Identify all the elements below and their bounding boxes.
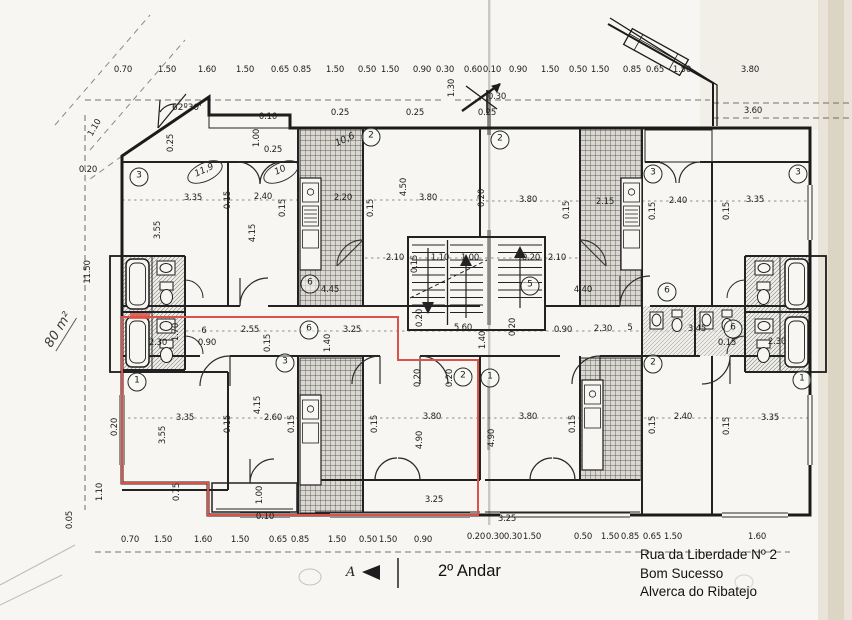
dimension-label: 6 — [201, 327, 206, 336]
room-number-circle: 1 — [481, 369, 500, 388]
dimension-label: 3.25 — [498, 515, 516, 524]
address-line-1: Rua da Liberdade Nº 2 — [640, 546, 777, 565]
dimension-label: 3.80 — [519, 196, 537, 205]
address-line-3: Alverca do Ribatejo — [640, 583, 777, 602]
dimension-label: 1.60 — [198, 66, 216, 75]
dimension-label: 1.40 — [479, 331, 488, 349]
scanned-floor-plan: 2º Andar Rua da Liberdade Nº 2 Bom Suces… — [0, 0, 852, 620]
dimension-label: 3.35 — [184, 194, 202, 203]
address-line-2: Bom Sucesso — [640, 565, 777, 584]
dimension-label: 1.10 — [431, 254, 449, 263]
dimension-label: 0.15 — [723, 202, 732, 220]
dimension-label: 0.15 — [279, 199, 288, 217]
room-number-circle: 6 — [300, 321, 319, 340]
dimension-label: 0.20 — [416, 309, 425, 327]
dimension-label: 1.50 — [541, 66, 559, 75]
dimension-label: 5 60 — [454, 324, 472, 333]
dimension-label: 1.50 — [523, 533, 541, 542]
dimension-label: 0.20 — [414, 369, 423, 387]
dimension-label: 1.50 — [326, 66, 344, 75]
dimension-label: 1.70 — [172, 323, 181, 341]
dimension-label: 3.35 — [176, 414, 194, 423]
dimension-label: 1.50 — [591, 66, 609, 75]
dimension-label: 0.30 — [486, 533, 504, 542]
dimension-label: 0.85 — [623, 66, 641, 75]
room-number-circle: 2 — [644, 355, 663, 374]
angle-annotation: 62º30' — [172, 103, 202, 113]
room-number-circle: 3 — [644, 165, 663, 184]
dimension-label: 0.25 — [406, 109, 424, 118]
room-number-circle: 5 — [521, 277, 540, 296]
dimension-label: 4.90 — [488, 429, 497, 447]
dimension-label: 3.80 — [741, 66, 759, 75]
section-cut-marker — [362, 558, 398, 588]
dimension-label: 0.75 — [173, 483, 182, 501]
dimension-label: 2.60 — [264, 414, 282, 423]
dimension-label: 0.15 — [563, 201, 572, 219]
dimension-label: 0.20 — [509, 318, 518, 336]
dimension-label: 2.40 — [674, 413, 692, 422]
dimension-label: 2.30 — [768, 338, 786, 347]
dimension-label: 0.10 — [259, 113, 277, 122]
dimension-label: 2.10 — [548, 254, 566, 263]
room-number-circle: 3 — [276, 354, 295, 373]
dimension-label: 0.15 — [718, 339, 736, 348]
dimension-label: 4.50 — [400, 178, 409, 196]
room-number-circle: 2 — [454, 368, 473, 387]
room-number-circle: 1 — [793, 371, 812, 390]
dimension-label: 0.20 — [522, 254, 540, 263]
dimension-label: 0.70 — [121, 536, 139, 545]
dimension-label: 0.50 — [358, 66, 376, 75]
dimension-label: 1.50 — [328, 536, 346, 545]
address-block: Rua da Liberdade Nº 2 Bom Sucesso Alverc… — [640, 546, 777, 602]
dimension-label: 2.15 — [596, 198, 614, 207]
dimension-label: 3.55 — [159, 426, 168, 444]
dimension-label: 1.50 — [379, 536, 397, 545]
dimension-label: 0.30 — [436, 66, 454, 75]
dimension-label: 1.60 — [748, 533, 766, 542]
dimension-label: 0.15 — [649, 416, 658, 434]
room-number-circle: 2 — [491, 131, 510, 150]
dimension-label: 0.50 — [574, 533, 592, 542]
dimension-label: 2.40 — [669, 197, 687, 206]
dimension-label: 0.15 — [367, 199, 376, 217]
dimension-label: 3.60 — [744, 107, 762, 116]
dimension-label: 0.65 — [646, 66, 664, 75]
dimension-label: 0.25 — [331, 109, 349, 118]
room-number-circle: 6 — [301, 275, 320, 294]
dimension-label: 0.15 — [288, 415, 297, 433]
dimension-label: 2.20 — [334, 194, 352, 203]
floor-plan-drawing — [0, 0, 852, 620]
dimension-label: 0.65 — [271, 66, 289, 75]
dimension-label: 0.85 — [621, 533, 639, 542]
room-number-circle: 3 — [789, 165, 808, 184]
room-number-circle: 3 — [130, 168, 149, 187]
dimension-label: 1.50 — [673, 66, 691, 75]
dimension-label: 0.85 — [291, 536, 309, 545]
dimension-label: 3.35 — [746, 196, 764, 205]
dimension-label: 3.80 — [419, 194, 437, 203]
dimension-label: 0.90 — [509, 66, 527, 75]
dimension-label: 1.40 — [324, 334, 333, 352]
dimension-label: 0.10 — [483, 66, 501, 75]
dimension-label: 0.50 — [359, 536, 377, 545]
dimension-label: 1.00 — [256, 486, 265, 504]
dimension-label: 1.30 — [448, 79, 457, 97]
dimension-label: 0.30 — [504, 533, 522, 542]
room-number-circle: 6 — [724, 320, 743, 339]
dimension-label: 0.85 — [293, 66, 311, 75]
dimension-label: 2.55 — [241, 326, 259, 335]
dimension-label: 0.25 — [478, 109, 496, 118]
dimension-label: 0.70 — [114, 66, 132, 75]
dimension-label: 0.90 — [554, 326, 572, 335]
dimension-label: 2.10 — [386, 254, 404, 263]
dimension-label: 0.20 — [79, 166, 97, 175]
dimension-label: 1.50 — [381, 66, 399, 75]
dimension-label: 1.10 — [96, 483, 105, 501]
dimension-label: 1.50 — [154, 536, 172, 545]
dimension-label: 3.35 — [761, 414, 779, 423]
dimension-label: 0.10 — [256, 513, 274, 522]
dimension-label: 0.15 — [649, 202, 658, 220]
dimension-label: 1.50 — [236, 66, 254, 75]
dimension-label: 0.90 — [414, 536, 432, 545]
dimension-label: 0.30 — [488, 93, 506, 102]
dimension-label: 0.65 — [643, 533, 661, 542]
dimension-label: 3.80 — [519, 413, 537, 422]
dimension-label: 0.15 — [371, 415, 380, 433]
dimension-label: 3.25 — [343, 326, 361, 335]
dimension-label: 4.90 — [416, 431, 425, 449]
dimension-label: 0.25 — [264, 146, 282, 155]
room-number-circle: 6 — [658, 283, 677, 302]
dimension-label: 0.15 — [264, 334, 273, 352]
dimension-label: 4.40 — [574, 286, 592, 295]
dimension-label: 3.55 — [154, 221, 163, 239]
dimension-label: 1.60 — [194, 536, 212, 545]
dimension-label: 1.50 — [601, 533, 619, 542]
dimension-label: 0.20 — [478, 189, 487, 207]
dimension-label: 1.50 — [664, 533, 682, 542]
dimension-label: 2.30 — [149, 339, 167, 348]
dimension-label: 3.80 — [423, 413, 441, 422]
dimension-label: 1.50 — [231, 536, 249, 545]
dimension-label: 2.40 — [254, 193, 272, 202]
dimension-label: 0.15 — [224, 415, 233, 433]
dimension-label: 3.25 — [425, 496, 443, 505]
dimension-label: 0.50 — [569, 66, 587, 75]
dimension-label: 0.90 — [413, 66, 431, 75]
dimension-label: 4.45 — [321, 286, 339, 295]
dimension-label: 0.20 — [467, 533, 485, 542]
dimension-label: 2.30 — [594, 325, 612, 334]
dimension-label: 0.90 — [198, 339, 216, 348]
dimension-label: 11.50 — [84, 260, 93, 283]
dimension-label: 4.15 — [254, 396, 263, 414]
dimension-label: 3.45 — [688, 325, 706, 334]
dimension-label: 1.00 — [253, 129, 262, 147]
room-number-circle: 1 — [128, 373, 147, 392]
dimension-label: 4.15 — [249, 224, 258, 242]
dimension-label: 0.15 — [723, 417, 732, 435]
dimension-label: 0.20 — [111, 418, 120, 436]
dimension-label: 0.15 — [569, 415, 578, 433]
room-number-circle: 2 — [362, 128, 381, 147]
dimension-label: 0.25 — [167, 134, 176, 152]
dimension-label: 0.05 — [66, 511, 75, 529]
dimension-label: 0.15 — [411, 255, 420, 273]
section-marker-label: A — [346, 565, 355, 580]
floor-title: 2º Andar — [438, 562, 501, 581]
dimension-label: 0.60 — [464, 66, 482, 75]
dimension-label: 1.00 — [461, 254, 479, 263]
dimension-label: 5 — [627, 324, 632, 333]
dimension-label: 0.15 — [224, 191, 233, 209]
dimension-label: 1.50 — [158, 66, 176, 75]
dimension-label: 0.65 — [269, 536, 287, 545]
